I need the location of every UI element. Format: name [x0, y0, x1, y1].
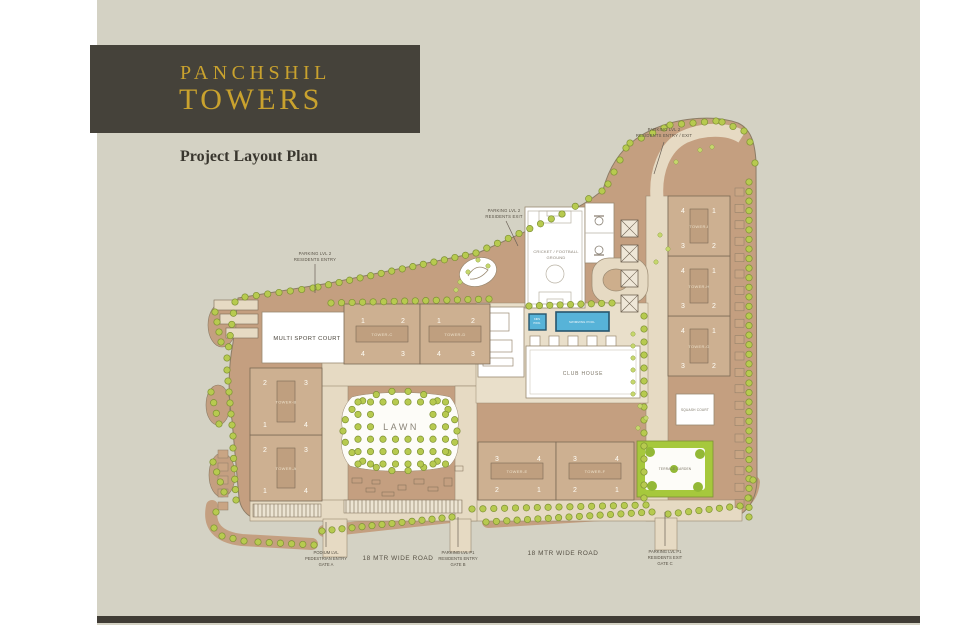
footer-bar — [97, 616, 920, 623]
unit-number: 3 — [401, 351, 405, 358]
tree-icon — [367, 436, 373, 442]
tree-icon — [505, 235, 511, 241]
unit-number: 4 — [304, 488, 308, 495]
tree-icon — [409, 518, 415, 524]
tree-icon — [392, 461, 398, 467]
tree-icon — [641, 391, 647, 397]
tree-icon — [454, 297, 460, 303]
tree-icon — [381, 299, 387, 305]
tree-icon — [441, 257, 447, 263]
tree-icon — [405, 467, 411, 473]
unit-number: 1 — [712, 208, 716, 215]
tree-icon — [607, 511, 613, 517]
tree-icon — [213, 410, 219, 416]
parking-strip-left — [253, 504, 321, 517]
parking-entry-exit-right-label: RESIDENTS ENTRY / EXIT — [636, 133, 693, 138]
tree-icon — [380, 461, 386, 467]
tree-icon — [746, 179, 752, 185]
tree-icon — [380, 436, 386, 442]
gate-c-label: PARKING LVL P1 — [649, 549, 683, 554]
tree-icon — [535, 516, 541, 522]
tree-icon — [611, 169, 617, 175]
tree-icon — [452, 254, 458, 260]
tree-icon — [747, 139, 753, 145]
tree-icon — [430, 424, 436, 430]
tree-icon — [644, 416, 648, 420]
tower-label: TOWER-B — [276, 400, 297, 405]
tower-c: 1243TOWER-C — [344, 304, 420, 364]
tree-icon — [746, 351, 752, 357]
tree-icon — [329, 527, 335, 533]
tree-icon — [300, 541, 306, 547]
tree-icon — [632, 502, 638, 508]
tree-icon — [610, 503, 616, 509]
tree-icon — [641, 456, 647, 462]
tree-icon — [746, 370, 752, 376]
tree-icon — [405, 388, 411, 394]
tree-icon — [567, 301, 573, 307]
multi-sport-court: MULTI SPORT COURT — [262, 312, 352, 363]
tree-icon — [641, 313, 647, 319]
tree-icon — [572, 203, 578, 209]
tree-icon — [685, 509, 691, 515]
unit-number: 3 — [471, 351, 475, 358]
tree-icon — [417, 436, 423, 442]
tree-icon — [389, 388, 395, 394]
gate-b-label: RESIDENTS ENTRY — [438, 556, 477, 561]
tree-icon — [719, 119, 725, 125]
tree-icon — [229, 321, 235, 327]
tree-icon — [548, 216, 554, 222]
tower-d: 1243TOWER-D — [420, 304, 490, 364]
tree-icon — [641, 482, 647, 488]
road-labels: PODIUM LVL PEDESTRIAN ENTRY GATE A 18 MT… — [305, 549, 683, 567]
tree-icon — [750, 477, 756, 483]
tree-icon — [746, 275, 752, 281]
tree-icon — [536, 302, 542, 308]
tree-icon — [627, 140, 633, 146]
tree-icon — [545, 515, 551, 521]
tower-g: 4132TOWER-G — [668, 316, 730, 376]
tree-icon — [399, 519, 405, 525]
kids-pool-label: POOL — [533, 321, 541, 325]
tree-icon — [658, 233, 662, 237]
club-house-label: CLUB HOUSE — [563, 371, 604, 377]
tree-icon — [417, 399, 423, 405]
parking-strip-center — [344, 500, 462, 513]
tree-icon — [319, 528, 325, 534]
tree-icon — [631, 332, 635, 336]
unit-number: 4 — [437, 351, 441, 358]
tree-icon — [631, 392, 635, 396]
tree-icon — [349, 525, 355, 531]
tree-icon — [230, 455, 236, 461]
tree-icon — [557, 302, 563, 308]
unit-number: 2 — [401, 318, 405, 325]
tree-icon — [746, 514, 752, 520]
tree-icon — [216, 329, 222, 335]
unit-number: 2 — [263, 447, 267, 454]
unit-number: 2 — [712, 243, 716, 250]
tree-icon — [373, 391, 379, 397]
tree-icon — [216, 421, 222, 427]
tree-icon — [208, 389, 214, 395]
cricket-ground-label: CRICKET / FOOTBALL — [533, 249, 579, 254]
tree-icon — [516, 230, 522, 236]
tree-icon — [328, 300, 334, 306]
tree-icon — [355, 436, 361, 442]
tree-icon — [578, 301, 584, 307]
swimming-pool: SWIMMING POOL — [556, 312, 609, 331]
tree-icon — [752, 160, 758, 166]
tree-icon — [442, 424, 448, 430]
tree-icon — [355, 461, 361, 467]
tree-icon — [486, 296, 492, 302]
tree-icon — [617, 157, 623, 163]
parking-entry-left-label: PARKING LVL 2 — [299, 251, 332, 256]
tree-icon — [746, 504, 752, 510]
tree-icon — [746, 322, 752, 328]
tree-icon — [556, 504, 562, 510]
tree-icon — [628, 510, 634, 516]
tree-icon — [501, 505, 507, 511]
tree-icon — [493, 518, 499, 524]
tree-icon — [228, 411, 234, 417]
tree-icon — [218, 339, 224, 345]
tree-icon — [469, 506, 475, 512]
tree-icon — [588, 503, 594, 509]
tree-icon — [277, 540, 283, 546]
tree-icon — [349, 406, 355, 412]
tree-icon — [599, 188, 605, 194]
tree-icon — [484, 245, 490, 251]
tree-icon — [214, 319, 220, 325]
tree-icon — [737, 503, 743, 509]
tree-icon — [214, 469, 220, 475]
tower-label: TOWER-A — [276, 466, 297, 471]
tree-icon — [410, 263, 416, 269]
tree-icon — [746, 380, 752, 386]
tree-icon — [666, 247, 670, 251]
tree-icon — [476, 258, 480, 262]
tree-icon — [217, 479, 223, 485]
unit-number: 2 — [471, 318, 475, 325]
tree-icon — [225, 378, 231, 384]
tree-icon — [224, 367, 230, 373]
unit-number: 4 — [615, 456, 619, 463]
tree-icon — [462, 252, 468, 258]
kids-pool-label: KIDS — [534, 317, 540, 321]
unit-number: 3 — [495, 456, 499, 463]
tree-icon — [483, 519, 489, 525]
unit-number: 1 — [263, 422, 267, 429]
tree-icon — [746, 284, 752, 290]
tree-icon — [512, 505, 518, 511]
tree-icon — [586, 196, 592, 202]
tower-i: 4132TOWER-I — [668, 196, 730, 256]
tree-icon — [423, 297, 429, 303]
tree-icon — [399, 266, 405, 272]
tree-icon — [389, 520, 395, 526]
tree-icon — [741, 128, 747, 134]
unit-number: 3 — [681, 303, 685, 310]
tree-icon — [355, 399, 361, 405]
tree-icon — [211, 525, 217, 531]
tree-icon — [417, 461, 423, 467]
tree-icon — [746, 303, 752, 309]
tree-icon — [230, 445, 236, 451]
tower-a: 2314TOWER-A — [250, 435, 322, 501]
tower-label: TOWER-G — [688, 344, 709, 349]
tree-icon — [340, 428, 346, 434]
tree-icon — [233, 497, 239, 503]
tree-icon — [339, 526, 345, 532]
gate-a-label: PODIUM LVL — [313, 550, 339, 555]
tree-icon — [380, 448, 386, 454]
tree-icon — [230, 433, 236, 439]
terrace-garden-label: TERRACE GARDEN — [659, 467, 692, 471]
tower-h: 4132TOWER-H — [668, 256, 730, 316]
unit-number: 1 — [615, 487, 619, 494]
tree-icon — [349, 299, 355, 305]
unit-number: 3 — [681, 243, 685, 250]
tree-icon — [392, 399, 398, 405]
tree-icon — [746, 198, 752, 204]
tree-icon — [458, 280, 462, 284]
tree-icon — [452, 439, 458, 445]
tree-icon — [649, 509, 655, 515]
tree-icon — [746, 208, 752, 214]
unit-number: 2 — [712, 303, 716, 310]
tree-icon — [367, 399, 373, 405]
tree-icon — [486, 264, 490, 268]
tree-icon — [727, 504, 733, 510]
tree-icon — [631, 344, 635, 348]
tree-icon — [231, 466, 237, 472]
unit-number: 4 — [537, 456, 541, 463]
tree-icon — [389, 268, 395, 274]
tree-icon — [605, 181, 611, 187]
unit-number: 1 — [437, 318, 441, 325]
tree-icon — [746, 188, 752, 194]
tree-icon — [598, 300, 604, 306]
tree-icon — [710, 145, 714, 149]
tree-icon — [641, 495, 647, 501]
tree-icon — [746, 389, 752, 395]
tree-icon — [392, 448, 398, 454]
tree-icon — [746, 342, 752, 348]
tree-icon — [412, 298, 418, 304]
tree-icon — [746, 361, 752, 367]
lawn-label: LAWN — [383, 422, 419, 432]
tower-label: TOWER-C — [371, 332, 392, 337]
unit-number: 4 — [304, 422, 308, 429]
tree-icon — [716, 505, 722, 511]
tree-icon — [597, 512, 603, 518]
tree-icon — [287, 288, 293, 294]
unit-number: 1 — [712, 268, 716, 275]
tree-icon — [631, 368, 635, 372]
tree-icon — [514, 517, 520, 523]
tree-icon — [373, 464, 379, 470]
gate-b-label: PARKING LVL P1 — [442, 550, 476, 555]
tree-icon — [232, 476, 238, 482]
gate-a-label: PEDESTRIAN ENTRY — [305, 556, 347, 561]
tree-icon — [576, 513, 582, 519]
tree-icon — [338, 300, 344, 306]
unit-number: 3 — [304, 447, 308, 454]
tree-icon — [355, 411, 361, 417]
tree-icon — [230, 535, 236, 541]
tree-icon — [746, 246, 752, 252]
tree-icon — [431, 259, 437, 265]
tree-icon — [359, 299, 365, 305]
tree-icon — [430, 461, 436, 467]
tree-icon — [641, 469, 647, 475]
tree-icon — [430, 411, 436, 417]
tree-icon — [609, 300, 615, 306]
tower-b: 2314TOWER-B — [250, 368, 322, 435]
tree-icon — [444, 297, 450, 303]
tree-icon — [226, 389, 232, 395]
tree-icon — [442, 436, 448, 442]
tree-icon — [746, 227, 752, 233]
tree-icon — [730, 123, 736, 129]
tree-icon — [225, 344, 231, 350]
tree-icon — [524, 516, 530, 522]
tree-icon — [641, 326, 647, 332]
unit-number: 4 — [361, 351, 365, 358]
tree-icon — [641, 365, 647, 371]
tree-icon — [227, 400, 233, 406]
tree-icon — [391, 298, 397, 304]
tree-icon — [745, 495, 751, 501]
club-house: CLUB HOUSE — [526, 346, 640, 398]
tree-icon — [475, 296, 481, 302]
tree-icon — [466, 270, 470, 274]
tree-icon — [746, 485, 752, 491]
tree-icon — [212, 309, 218, 315]
tree-icon — [430, 448, 436, 454]
tree-icon — [675, 510, 681, 516]
tree-icon — [439, 515, 445, 521]
tree-icon — [547, 302, 553, 308]
tree-icon — [690, 120, 696, 126]
tree-icon — [746, 409, 752, 415]
tree-icon — [370, 299, 376, 305]
tree-icon — [746, 437, 752, 443]
tree-icon — [355, 448, 361, 454]
tree-icon — [578, 503, 584, 509]
tree-icon — [417, 448, 423, 454]
tree-icon — [213, 509, 219, 515]
tree-icon — [346, 277, 352, 283]
tree-icon — [641, 443, 647, 449]
unit-number: 3 — [573, 456, 577, 463]
tree-icon — [368, 273, 374, 279]
tree-icon — [641, 339, 647, 345]
tree-icon — [224, 355, 230, 361]
unit-number: 4 — [681, 268, 685, 275]
tree-icon — [527, 225, 533, 231]
unit-number: 2 — [573, 487, 577, 494]
tree-icon — [442, 399, 448, 405]
tree-icon — [545, 504, 551, 510]
tower-e: 3421TOWER-E — [478, 442, 556, 500]
tree-icon — [367, 411, 373, 417]
tree-icon — [746, 294, 752, 300]
tree-icon — [452, 417, 458, 423]
unit-number: 1 — [712, 328, 716, 335]
unit-number: 2 — [495, 487, 499, 494]
parking-entry-left-label: RESIDENTS ENTRY — [294, 257, 336, 262]
unit-number: 3 — [681, 363, 685, 370]
squash-court: SQUASH COURT — [676, 394, 714, 425]
tree-icon — [746, 313, 752, 319]
tree-icon — [746, 332, 752, 338]
tree-icon — [299, 286, 305, 292]
tree-icon — [465, 296, 471, 302]
tree-icon — [355, 424, 361, 430]
tower-label: TOWER-F — [585, 469, 606, 474]
tree-icon — [599, 503, 605, 509]
tree-icon — [342, 439, 348, 445]
tree-icon — [266, 539, 272, 545]
unit-number: 4 — [681, 328, 685, 335]
tree-icon — [473, 250, 479, 256]
tree-icon — [494, 240, 500, 246]
road-label-left: 18 MTR WIDE ROAD — [362, 555, 433, 562]
tree-icon — [641, 378, 647, 384]
tree-icon — [420, 261, 426, 267]
tree-icon — [367, 448, 373, 454]
tree-icon — [325, 282, 331, 288]
parking-entry-exit-right-label: PARKING LVL 2 — [648, 127, 681, 132]
tree-icon — [367, 424, 373, 430]
tree-icon — [631, 356, 635, 360]
tree-icon — [638, 509, 644, 515]
tower-label: TOWER-H — [688, 284, 709, 289]
tree-icon — [342, 417, 348, 423]
tree-icon — [746, 255, 752, 261]
tree-icon — [219, 533, 225, 539]
multi-sport-court-label: MULTI SPORT COURT — [273, 336, 340, 342]
tree-icon — [229, 422, 235, 428]
site-plan: CRICKET / FOOTBALL GROUND SWIMMING POOL … — [0, 0, 957, 625]
tree-icon — [288, 541, 294, 547]
tree-icon — [526, 303, 532, 309]
tree-icon — [698, 148, 702, 152]
tree-icon — [442, 411, 448, 417]
tree-icon — [449, 514, 455, 520]
unit-number: 2 — [712, 363, 716, 370]
tree-icon — [641, 430, 647, 436]
tree-icon — [706, 506, 712, 512]
tree-icon — [369, 522, 375, 528]
unit-number: 1 — [361, 318, 365, 325]
tree-icon — [567, 504, 573, 510]
squash-court-label: SQUASH COURT — [681, 408, 709, 412]
tree-icon — [559, 211, 565, 217]
tree-icon — [587, 513, 593, 519]
tree-icon — [211, 400, 217, 406]
tree-icon — [746, 418, 752, 424]
tree-icon — [242, 294, 248, 300]
tree-icon — [665, 511, 671, 517]
tree-icon — [643, 502, 649, 508]
tree-icon — [454, 288, 458, 292]
tree-icon — [232, 299, 238, 305]
